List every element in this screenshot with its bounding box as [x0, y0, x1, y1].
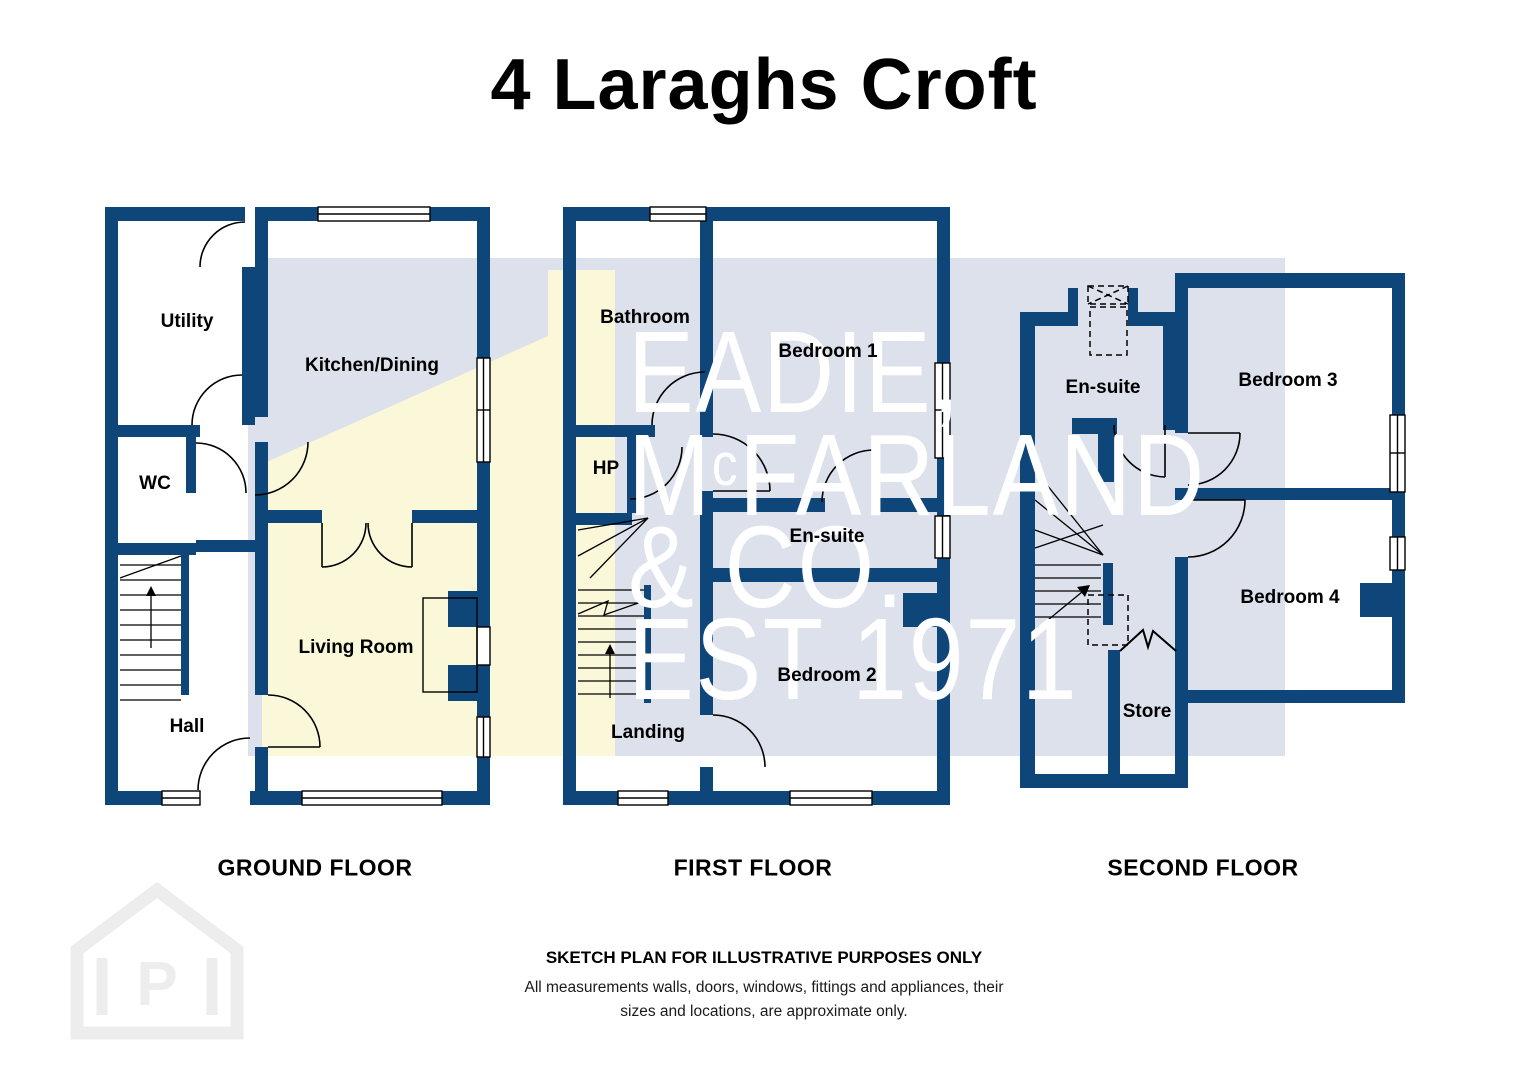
room-label-bedroom3: Bedroom 3: [1238, 370, 1337, 392]
watermark-line4: EST 1971: [628, 613, 1206, 705]
room-label-landing: Landing: [611, 722, 685, 744]
caption-second-floor: SECOND FLOOR: [1107, 855, 1298, 882]
room-label-store: Store: [1123, 701, 1172, 723]
caption-ground-floor: GROUND FLOOR: [217, 855, 412, 882]
disclaimer: SKETCH PLAN FOR ILLUSTRATIVE PURPOSES ON…: [0, 948, 1528, 1024]
page-title: 4 Laraghs Croft: [0, 44, 1528, 126]
room-label-utility: Utility: [161, 311, 214, 333]
watermark-superscript-c: c: [712, 430, 739, 498]
floorplan-page: 4 Laraghs Croft: [0, 0, 1528, 1080]
room-label-hall: Hall: [170, 716, 205, 738]
room-label-hp: HP: [593, 458, 619, 480]
watermark-line1: EADIE,: [628, 326, 1206, 418]
room-label-bedroom2: Bedroom 2: [777, 665, 876, 687]
room-label-bedroom1: Bedroom 1: [778, 341, 877, 363]
disclaimer-heading: SKETCH PLAN FOR ILLUSTRATIVE PURPOSES ON…: [0, 948, 1528, 968]
room-label-bathroom: Bathroom: [600, 307, 690, 329]
disclaimer-body-2: sizes and locations, are approximate onl…: [0, 1000, 1528, 1024]
disclaimer-body-1: All measurements walls, doors, windows, …: [0, 976, 1528, 1000]
room-label-ensuite-first: En-suite: [790, 526, 865, 548]
room-label-kitchen-dining: Kitchen/Dining: [305, 355, 439, 377]
ground-stairs: [120, 556, 181, 700]
caption-first-floor: FIRST FLOOR: [674, 855, 833, 882]
room-label-living-room: Living Room: [298, 637, 413, 659]
room-label-bedroom4: Bedroom 4: [1240, 587, 1339, 609]
room-label-ensuite-second: En-suite: [1066, 377, 1141, 399]
second-windows: [1390, 415, 1405, 570]
room-label-wc: WC: [139, 473, 171, 495]
